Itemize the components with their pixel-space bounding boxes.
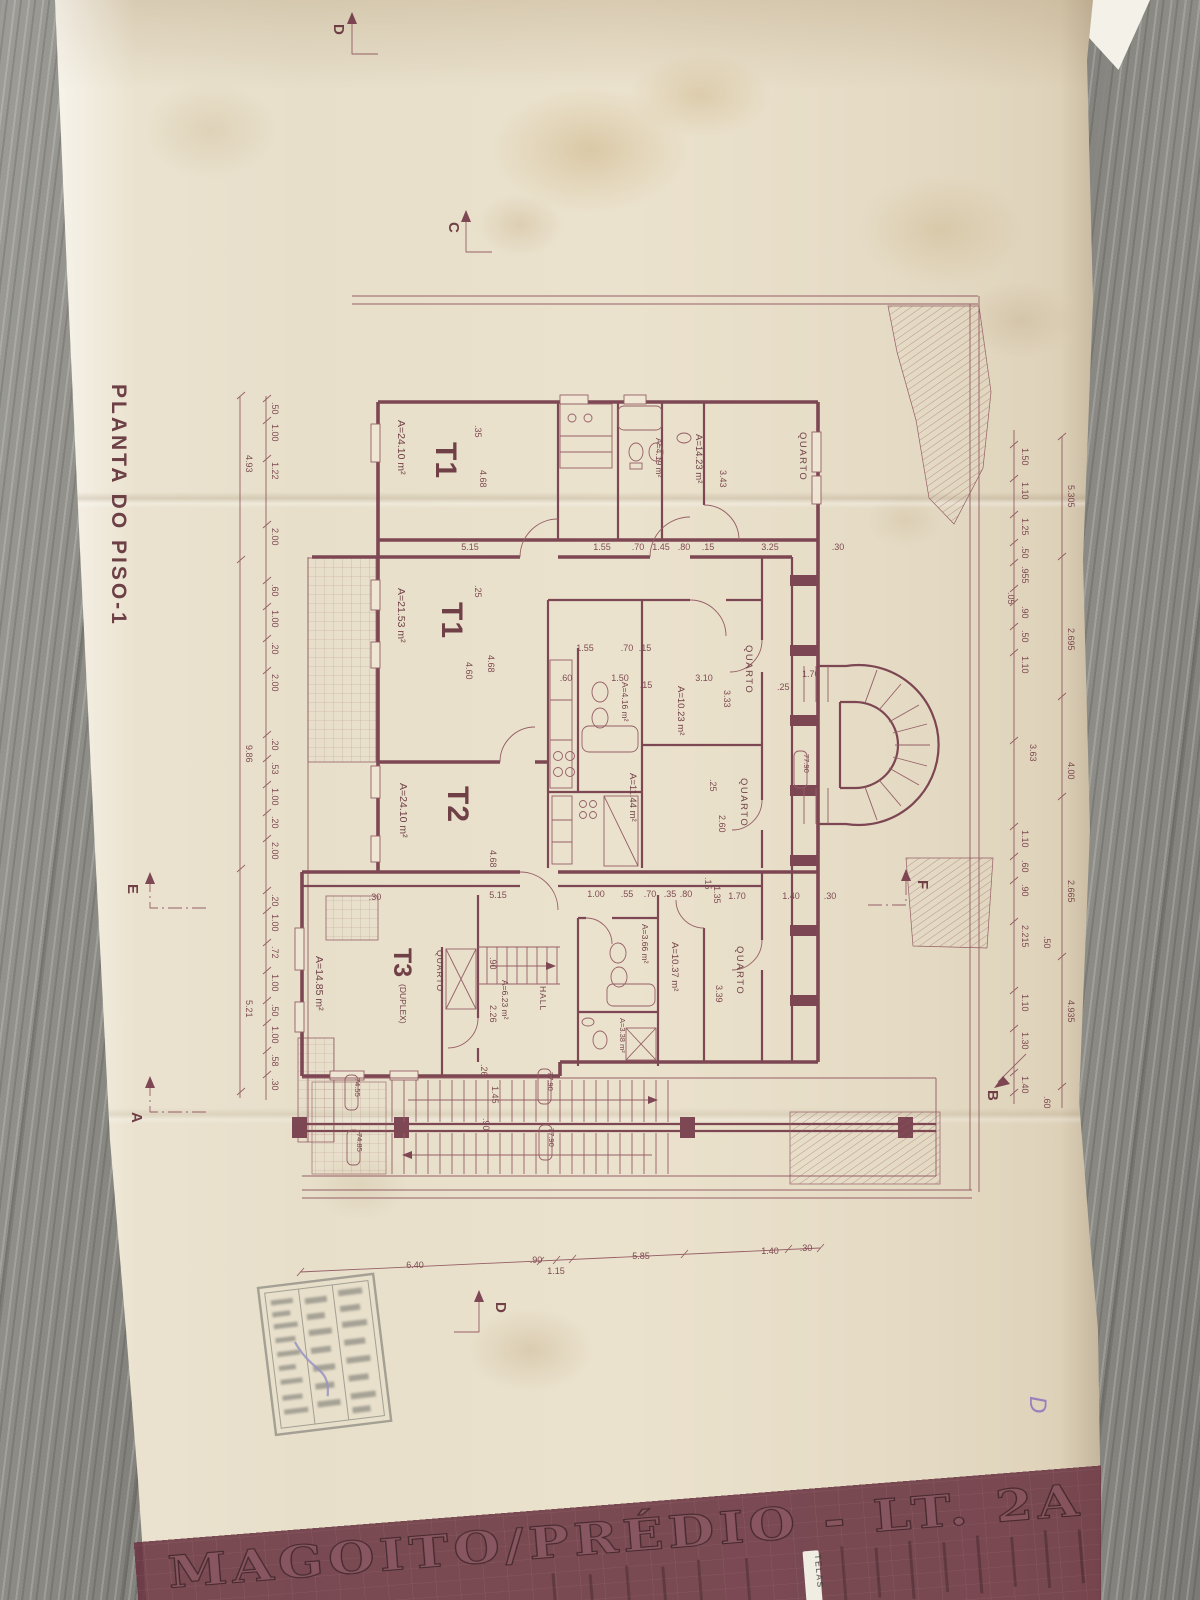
section-letter: D (330, 24, 347, 35)
dim-label: .35 (473, 425, 483, 438)
dim-label: .80 (678, 542, 691, 552)
room-label-quarto: QUARTO (738, 778, 749, 827)
dim-label: 1.00 (270, 610, 280, 628)
dim-label: .26 (479, 1064, 489, 1077)
dim-label: 4.68 (488, 850, 498, 868)
dim-label: 2.695 (1066, 628, 1076, 651)
dim-label: 1.00 (270, 424, 280, 442)
area-label: A=24.10 m² (395, 420, 407, 475)
dims-left-inner: .501.001.222.00.601.00.202.00.20.531.00.… (270, 402, 280, 1091)
dim-label: .80 (680, 889, 693, 899)
dim-label: 3.25 (761, 542, 779, 552)
tiled-terraces (298, 558, 378, 1142)
section-letter: E (124, 884, 141, 894)
dims-left-outer: 4.939.865.21 (244, 455, 254, 1018)
dim-label: 1.45 (652, 542, 670, 552)
dim-label: 5.15 (461, 542, 479, 552)
dim-label: 1.00 (270, 914, 280, 932)
dim-label: 3.63 (1028, 744, 1038, 762)
dim-label: 2.665 (1066, 880, 1076, 903)
dims-top-row: 5.151.55.701.45.80.153.25.30 (461, 542, 844, 552)
unit-label-t1-top: T1 (429, 442, 462, 479)
dim-label: 1.40 (782, 891, 800, 901)
area-label: A=21.53 m² (395, 588, 407, 643)
dim-label: 1.40 (1020, 1076, 1030, 1094)
dim-label: 1.10 (1020, 482, 1030, 500)
dim-label: .30 (824, 891, 837, 901)
dim-label: 1.50 (1020, 448, 1030, 466)
unit-label-t3-sub: (DUPLEX) (398, 984, 408, 1024)
room-labels: PLANTA DO PISO-1 T1 A=24.10 m² QUARTO A=… (107, 384, 808, 1053)
dim-label: 4.00 (1066, 762, 1076, 780)
room-label-quarto: QUARTO (734, 946, 745, 995)
dim-label: .15 (703, 877, 713, 890)
approval-stamp (258, 1274, 391, 1435)
section-letter: C (445, 222, 462, 233)
dim-label: 1.15 (547, 1266, 565, 1276)
dim-label: 1.10 (1020, 994, 1030, 1012)
area-label: A=10.23 m² (675, 686, 686, 735)
dims-mid-row: 1.55.70.15.601.50.153.10 (560, 643, 713, 690)
room-label-quarto: QUARTO (435, 950, 445, 992)
dim-label: .55 (621, 889, 634, 899)
unit-label-t1-mid: T1 (435, 602, 468, 639)
dim-label: 5.15 (489, 890, 507, 900)
dim-label: .20 (270, 642, 280, 655)
dim-label: 1.00 (270, 788, 280, 806)
area-label: A=3.38 m² (618, 1018, 627, 1053)
dim-label: 1.22 (270, 462, 280, 480)
section-letter: F (914, 880, 931, 889)
curved-staircase (804, 665, 939, 825)
dims-bottom-row: 6.40.901.155.851.40.30 (406, 1243, 812, 1276)
dim-label: .20 (270, 816, 280, 829)
dim-label: 1.10 (1020, 830, 1030, 848)
dim-label: .50 (270, 1004, 280, 1017)
dim-label: .15 (640, 680, 653, 690)
dim-label: .58 (270, 1054, 280, 1067)
area-label: A=14.85 m² (313, 956, 325, 1011)
area-label: A=3.66 m² (640, 924, 650, 964)
dim-label: .20 (270, 894, 280, 907)
dim-label: 1.00 (270, 1026, 280, 1044)
dim-label: .15 (702, 542, 715, 552)
dim-label: .50 (1020, 630, 1030, 643)
dim-label: 1.55 (593, 542, 611, 552)
dim-label: .72 (270, 946, 280, 959)
dim-label: 1.55 (576, 643, 594, 653)
floor-plan-drawing: .501.001.222.00.601.00.202.00.20.531.00.… (0, 0, 1200, 1600)
dim-label: 5.21 (244, 1000, 254, 1018)
dim-label: 1.40 (761, 1246, 779, 1256)
dim-label: .25 (473, 585, 483, 598)
dim-label: 2.60 (717, 815, 727, 833)
room-label-hall: HALL (538, 986, 548, 1011)
unit-label-t3: T3 (388, 948, 416, 977)
dim-label: 9.86 (244, 745, 254, 763)
dim-label: .90 (1020, 606, 1030, 619)
room-label-quarto: QUARTO (743, 645, 754, 694)
unit-label-t2: T2 (441, 786, 474, 823)
dim-label: 2.00 (270, 842, 280, 860)
dim-label: .50 (1020, 546, 1030, 559)
dim-label: 1.45 (490, 1086, 500, 1104)
photo-of-floor-plan: { "page": { "vertical_title": "PLANTA DO… (0, 0, 1200, 1600)
area-label: A=11.44 m² (627, 773, 638, 822)
dim-label: .90 (481, 1118, 491, 1131)
dim-label: .50 (270, 402, 280, 415)
dim-label: 1.70 (802, 669, 820, 679)
dim-label: .90 (488, 957, 498, 970)
dim-label: .30 (369, 892, 382, 902)
room-label-quarto: QUARTO (797, 432, 808, 481)
dim-label: 1.70 (728, 891, 746, 901)
elevation-value: 77.90 (546, 1072, 555, 1091)
dim-label: 3.43 (718, 470, 728, 488)
section-letter: B (984, 1090, 1001, 1101)
dim-label: .05 (1006, 592, 1016, 605)
dims-right-outer: 5.3052.6954.002.6654.935 (1066, 485, 1076, 1023)
elevation-value: 77.90 (547, 1128, 556, 1147)
dim-label: 1.10 (1020, 656, 1030, 674)
dim-label: .60 (1042, 1096, 1052, 1109)
dim-label: 4.68 (486, 655, 496, 673)
area-label: A=14.23 m² (693, 434, 704, 483)
dim-label: 5.305 (1066, 485, 1076, 508)
dim-label: 2.215 (1020, 925, 1030, 948)
section-letter: A (128, 1112, 145, 1123)
area-label: A=10.37 m² (669, 942, 680, 991)
dim-label: .53 (270, 762, 280, 775)
dim-label: .50 (1042, 936, 1052, 949)
dim-label: .60 (560, 673, 573, 683)
dim-label: 5.85 (632, 1251, 650, 1261)
dim-label: 4.935 (1066, 1000, 1076, 1023)
dims-low-row: .305.151.00.55.70.35.801.351.701.40.30.1… (369, 877, 837, 904)
dim-label: 1.25 (1020, 518, 1030, 536)
dim-label: .25 (708, 779, 718, 792)
dim-label: 3.33 (722, 690, 732, 708)
dim-label: .20 (270, 738, 280, 751)
dim-label: 4.68 (478, 470, 488, 488)
dim-label: .70 (644, 889, 657, 899)
drawing-title: PLANTA DO PISO-1 (107, 384, 130, 627)
area-label: A=6.23 m² (500, 980, 510, 1020)
area-label: A=24.10 m² (397, 783, 409, 838)
handwritten-mark: D (1024, 1396, 1051, 1413)
elevation-value: 74.85 (355, 1133, 364, 1152)
dim-label: .30 (800, 1243, 813, 1253)
dim-label: 2.00 (270, 528, 280, 546)
dim-label: 2.26 (488, 1005, 498, 1023)
dim-label: .90 (530, 1255, 543, 1265)
dim-label: 1.00 (270, 974, 280, 992)
dim-label: .60 (270, 584, 280, 597)
area-label: A=4.19 m² (654, 438, 664, 478)
dim-label: 4.60 (464, 662, 474, 680)
dim-label: .955 (1020, 566, 1030, 584)
title-block: MAGOITO/PRÉDIO - LT. 2A TELAS (134, 1462, 1152, 1600)
dim-label: .70 (621, 643, 634, 653)
dim-label: .60 (1020, 860, 1030, 873)
dim-label: .15 (639, 643, 652, 653)
dim-label: .70 (632, 542, 645, 552)
dim-label: 4.93 (244, 455, 254, 473)
dim-label: 1.30 (1020, 1032, 1030, 1050)
elevation-value: 74.55 (353, 1078, 362, 1097)
dim-label: 3.10 (695, 673, 713, 683)
elevation-value: 77.90 (802, 754, 811, 773)
area-label: A=4.16 m² (620, 682, 630, 722)
dim-label: 3.39 (714, 985, 724, 1003)
dim-label: .30 (832, 542, 845, 552)
exterior-stairs (292, 1078, 940, 1276)
dim-label: 6.40 (406, 1260, 424, 1270)
dim-label: .90 (1020, 884, 1030, 897)
dim-label: .25 (777, 682, 790, 692)
dim-label: .30 (270, 1078, 280, 1091)
dim-label: 1.00 (587, 889, 605, 899)
dim-label: .35 (664, 889, 677, 899)
dims-right-inner: 1.501.101.25.50.955.05.90.501.103.631.10… (1006, 448, 1052, 1109)
section-letter: D (492, 1302, 509, 1313)
dim-label: 2.00 (270, 674, 280, 692)
